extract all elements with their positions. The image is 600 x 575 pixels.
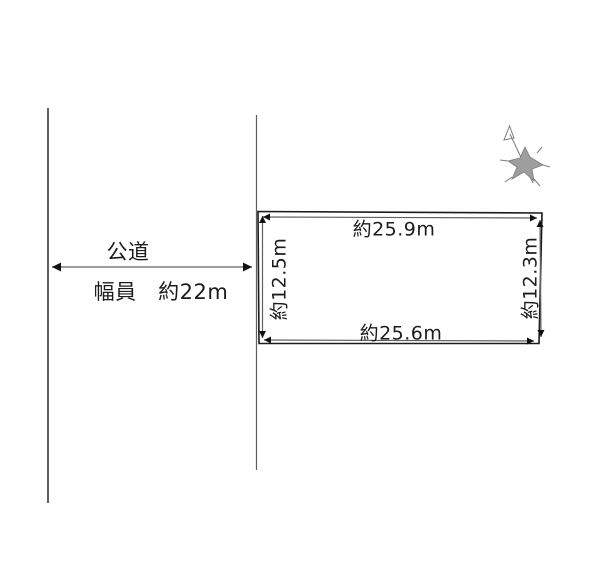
site-plan-diagram: 公道 幅員 約22m 約25.9m 約25.6m 約12.5m 約12.3m bbox=[0, 0, 600, 575]
road-width-label: 幅員 約22m bbox=[94, 276, 229, 306]
road-name-label: 公道 bbox=[107, 236, 150, 266]
plot-left-dimension-label: 約12.5m bbox=[265, 238, 292, 321]
plot-bottom-dimension-label: 約25.6m bbox=[360, 319, 443, 346]
site-plan-drawing bbox=[0, 0, 600, 575]
plot-top-dimension-label: 約25.9m bbox=[353, 215, 436, 242]
plot-right-dimension-label: 約12.3m bbox=[516, 237, 543, 320]
north-arrow-icon bbox=[500, 126, 550, 186]
